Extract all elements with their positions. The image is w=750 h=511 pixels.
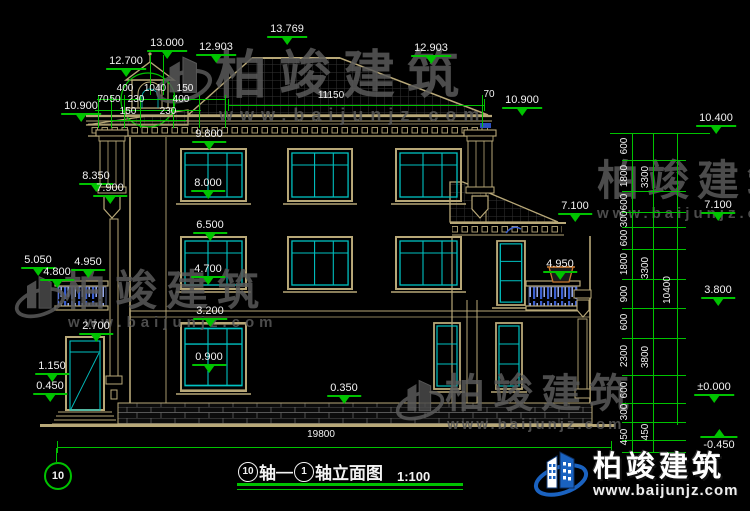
title-text: 轴立面图 [315, 459, 383, 484]
window [288, 149, 352, 201]
brand-logo-name: 柏竣建筑 [593, 452, 738, 484]
title-text: 轴 [259, 459, 276, 484]
right-balcony [526, 267, 580, 310]
window-narrow [434, 323, 460, 389]
title-axis-end: 1 [294, 462, 314, 482]
window [181, 237, 246, 289]
door-steps [52, 412, 118, 424]
brand-logo: 柏竣建筑 www.baijunjz.com [533, 446, 738, 504]
drawing-title: 10 轴 — 1 轴立面图 1:100 [237, 459, 430, 484]
title-dash: — [276, 462, 293, 482]
brand-logo-icon [533, 446, 589, 504]
window [181, 149, 246, 201]
drawing-canvas: 柏竣建筑 www.baijunjz.com 柏竣建筑 www.baijunjz.… [0, 0, 750, 511]
left-balcony [55, 281, 108, 310]
window [288, 237, 352, 289]
axis-bubble: 10 [44, 462, 72, 490]
title-axis-start: 10 [238, 462, 258, 482]
shield-ornament [104, 196, 120, 218]
title-scale: 1:100 [397, 469, 430, 484]
window [181, 323, 246, 390]
window [396, 237, 461, 289]
facade-walls [130, 137, 590, 403]
ground-line [40, 424, 615, 427]
annex-pilaster [574, 290, 591, 398]
plinth [40, 403, 615, 427]
shield-ornament [577, 300, 589, 317]
left-pilaster [96, 130, 128, 399]
axis-bubble-label: 10 [52, 470, 64, 482]
window-annex [497, 241, 525, 305]
eave-accent [480, 123, 491, 128]
brand-logo-url: www.baijunjz.com [593, 483, 738, 498]
window-narrow [496, 323, 522, 389]
planter-pot [549, 267, 573, 282]
building-elevation-linework [0, 0, 750, 511]
